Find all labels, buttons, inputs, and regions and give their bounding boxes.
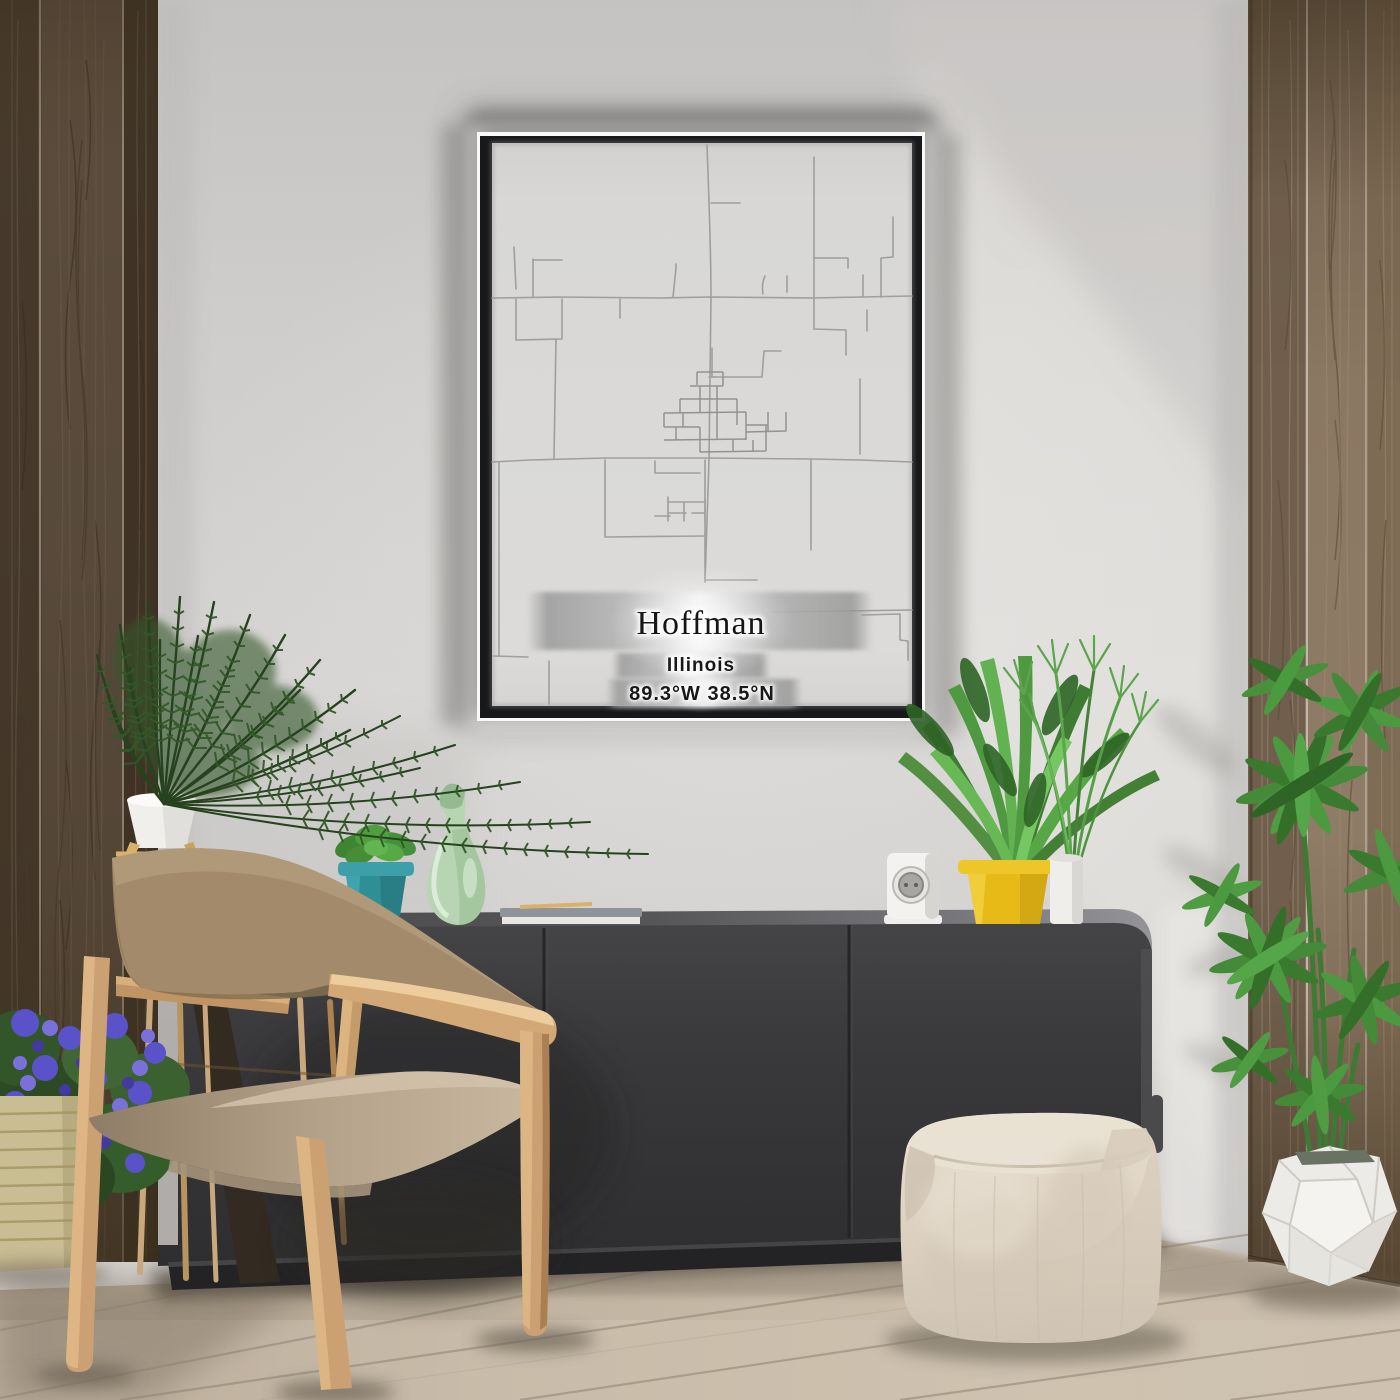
svg-text:89.3°W 38.5°N: 89.3°W 38.5°N xyxy=(629,683,775,705)
svg-text:Hoffman: Hoffman xyxy=(636,605,765,642)
svg-text:Illinois: Illinois xyxy=(667,655,735,676)
